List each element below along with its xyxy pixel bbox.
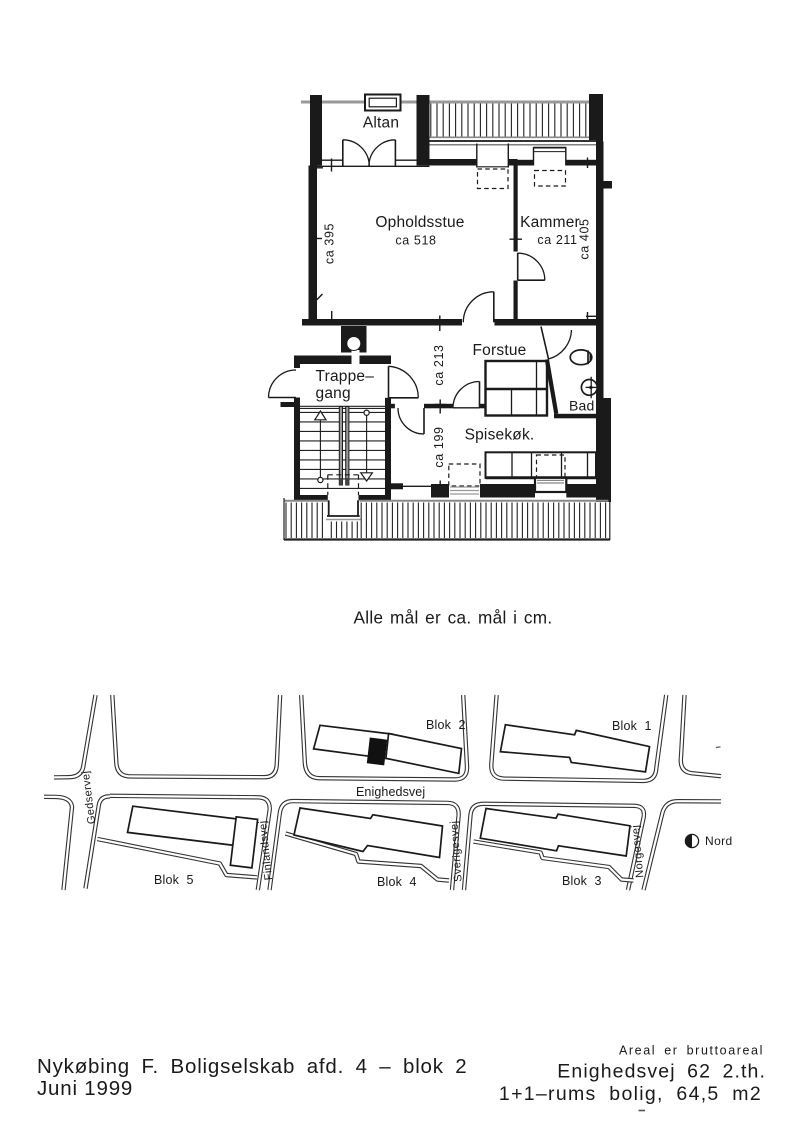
svg-text:Blok 2: Blok 2 [426,718,466,732]
svg-text:ca 405: ca 405 [578,218,592,259]
svg-text:Blok 4: Blok 4 [377,875,417,889]
svg-text:ca 213: ca 213 [432,344,446,385]
svg-text:Nykøbing F. Boligselskab afd.: Nykøbing F. Boligselskab afd. 4 – blok 2 [37,1055,468,1078]
svg-text:Bad: Bad [569,398,595,414]
svg-text:Nord: Nord [705,834,733,848]
svg-text:Spisekøk.: Spisekøk. [465,427,535,444]
svg-text:Alle mål er ca. mål i cm.: Alle mål er ca. mål i cm. [354,608,553,628]
svg-text:Forstue: Forstue [473,342,527,359]
svg-text:ca 199: ca 199 [432,426,446,467]
svg-text:Juni 1999: Juni 1999 [37,1077,133,1100]
svg-text:Kammer: Kammer [520,214,580,231]
svg-text:gang: gang [316,385,351,402]
svg-text:Opholdsstue: Opholdsstue [375,214,464,231]
svg-text:Blok 3: Blok 3 [562,874,602,888]
svg-text:Blok 1: Blok 1 [612,719,652,733]
svg-text:Enighedsvej: Enighedsvej [356,785,425,799]
svg-text:ca 395: ca 395 [323,223,337,264]
svg-text:Areal er bruttoareal: Areal er bruttoareal [619,1044,764,1058]
svg-text:Trappe–: Trappe– [316,368,375,385]
svg-text:1+1–rums bolig, 64,5 m2: 1+1–rums bolig, 64,5 m2 [499,1083,762,1105]
svg-text:Altan: Altan [363,115,399,132]
svg-text:ca 211: ca 211 [537,233,577,247]
svg-text:Enighedsvej 62 2.th.: Enighedsvej 62 2.th. [557,1061,766,1083]
svg-text:ca 518: ca 518 [395,234,436,248]
svg-text:Blok 5: Blok 5 [154,873,194,887]
